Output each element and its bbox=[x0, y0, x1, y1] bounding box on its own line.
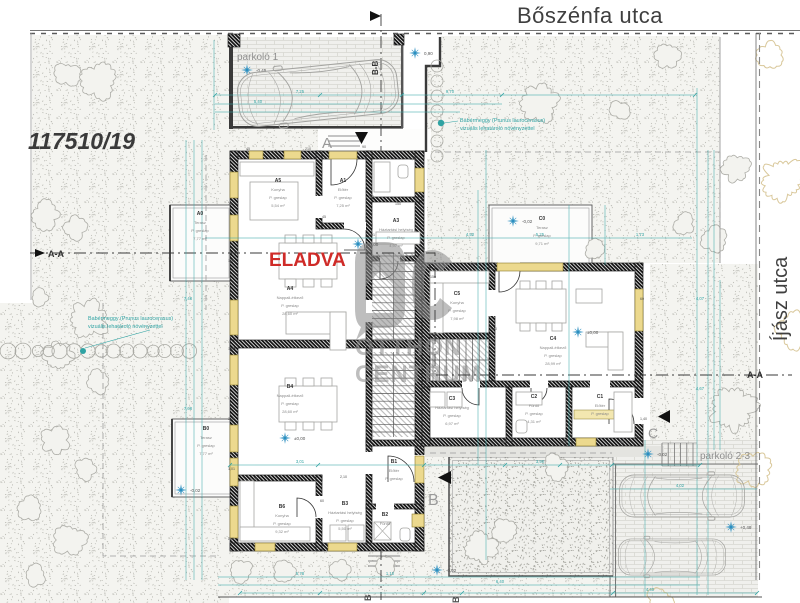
svg-text:-0,02: -0,02 bbox=[522, 219, 533, 224]
svg-text:Nappali-étkező: Nappali-étkező bbox=[277, 295, 304, 300]
svg-text:P. greslap: P. greslap bbox=[336, 518, 354, 523]
svg-text:9,71 m²: 9,71 m² bbox=[535, 241, 549, 246]
svg-text:7,98 m²: 7,98 m² bbox=[450, 316, 464, 321]
svg-text:P. greslap: P. greslap bbox=[525, 411, 543, 416]
svg-text:7,25 m²: 7,25 m² bbox=[336, 203, 350, 208]
svg-text:P. greslap: P. greslap bbox=[281, 401, 299, 406]
svg-text:vizuális lehatároló növényzett: vizuális lehatároló növényzettel bbox=[88, 324, 163, 330]
svg-text:6,97 m²: 6,97 m² bbox=[445, 421, 459, 426]
svg-text:±0,00: ±0,00 bbox=[294, 436, 306, 441]
svg-text:B: B bbox=[428, 492, 439, 509]
svg-text:1,40: 1,40 bbox=[418, 247, 425, 251]
svg-text:B: B bbox=[363, 594, 373, 601]
svg-text:C4: C4 bbox=[550, 336, 557, 342]
svg-text:Előtér: Előtér bbox=[595, 403, 606, 408]
svg-text:Terasz: Terasz bbox=[536, 225, 548, 230]
svg-text:-0,02: -0,02 bbox=[657, 452, 668, 457]
svg-text:7,48: 7,48 bbox=[184, 296, 193, 301]
svg-text:Fürdő: Fürdő bbox=[380, 521, 391, 526]
svg-text:Konyha: Konyha bbox=[275, 513, 289, 518]
svg-text:P. greslap: P. greslap bbox=[443, 413, 461, 418]
svg-text:P. greslap: P. greslap bbox=[387, 235, 405, 240]
svg-text:P. greslap: P. greslap bbox=[269, 195, 287, 200]
svg-text:Bőszénfa utca: Bőszénfa utca bbox=[517, 3, 663, 28]
svg-text:P. greslap: P. greslap bbox=[385, 476, 403, 481]
svg-text:60: 60 bbox=[320, 499, 324, 503]
svg-text:4,50: 4,50 bbox=[466, 232, 475, 237]
svg-text:1,40: 1,40 bbox=[640, 417, 647, 421]
svg-text:90: 90 bbox=[640, 357, 644, 361]
svg-text:C5: C5 bbox=[454, 291, 461, 297]
svg-text:OTTHON: OTTHON bbox=[355, 334, 462, 361]
svg-text:P. greslap: P. greslap bbox=[533, 233, 551, 238]
svg-text:Nappali-étkező: Nappali-étkező bbox=[540, 345, 567, 350]
svg-text:60: 60 bbox=[418, 357, 422, 361]
svg-text:28,99 m²: 28,99 m² bbox=[545, 361, 561, 366]
svg-text:300: 300 bbox=[368, 195, 374, 199]
svg-text:90: 90 bbox=[300, 542, 304, 546]
svg-text:B6: B6 bbox=[279, 504, 286, 510]
svg-text:4,40: 4,40 bbox=[646, 587, 655, 592]
svg-text:B1: B1 bbox=[391, 459, 398, 465]
svg-text:75: 75 bbox=[372, 503, 376, 507]
svg-text:Háztartási helyiség: Háztartási helyiség bbox=[328, 510, 362, 515]
svg-text:240: 240 bbox=[228, 417, 234, 421]
svg-text:90: 90 bbox=[362, 145, 366, 149]
svg-text:-0,02: -0,02 bbox=[446, 568, 457, 573]
svg-text:A3: A3 bbox=[393, 218, 400, 224]
svg-text:1,01: 1,01 bbox=[410, 157, 417, 161]
svg-text:4,97 m²: 4,97 m² bbox=[389, 243, 403, 248]
svg-text:2,40: 2,40 bbox=[250, 477, 257, 481]
svg-text:ELADVA: ELADVA bbox=[269, 250, 346, 271]
svg-text:1,40: 1,40 bbox=[490, 327, 497, 331]
svg-text:7,77 m²: 7,77 m² bbox=[193, 236, 207, 241]
svg-text:Konyha: Konyha bbox=[271, 187, 285, 192]
svg-text:4,31 m²: 4,31 m² bbox=[527, 419, 541, 424]
svg-text:4,02: 4,02 bbox=[676, 483, 685, 488]
svg-text:4,07: 4,07 bbox=[696, 296, 705, 301]
svg-text:Babérmeggy (Prunus laurocerasu: Babérmeggy (Prunus laurocerasus) bbox=[460, 118, 545, 124]
svg-text:4,67: 4,67 bbox=[696, 386, 705, 391]
svg-text:0,90: 0,90 bbox=[424, 51, 433, 56]
svg-text:90: 90 bbox=[418, 497, 422, 501]
svg-text:60: 60 bbox=[640, 297, 644, 301]
svg-text:150: 150 bbox=[430, 275, 436, 279]
svg-text:Nappali-étkező: Nappali-étkező bbox=[277, 393, 304, 398]
svg-text:parkoló 2-3: parkoló 2-3 bbox=[700, 451, 750, 462]
svg-text:5,40: 5,40 bbox=[254, 99, 263, 104]
svg-text:parkoló 1: parkoló 1 bbox=[237, 52, 279, 63]
svg-text:1,01: 1,01 bbox=[560, 440, 567, 444]
svg-text:B2: B2 bbox=[382, 512, 389, 518]
svg-text:5,78: 5,78 bbox=[296, 571, 305, 576]
svg-text:A1: A1 bbox=[340, 178, 347, 184]
svg-text:A-A: A-A bbox=[48, 249, 64, 259]
svg-text:C1: C1 bbox=[597, 394, 604, 400]
svg-text:Terasz: Terasz bbox=[200, 435, 212, 440]
svg-text:7,25: 7,25 bbox=[296, 89, 305, 94]
svg-text:Konyha: Konyha bbox=[450, 300, 464, 305]
svg-text:5,50 m²: 5,50 m² bbox=[338, 526, 352, 531]
svg-text:1,01: 1,01 bbox=[430, 332, 437, 336]
svg-text:150: 150 bbox=[228, 259, 234, 263]
svg-text:Háztartási helyiség: Háztartási helyiség bbox=[435, 405, 469, 410]
svg-text:3,01: 3,01 bbox=[296, 459, 305, 464]
svg-text:A5: A5 bbox=[275, 178, 282, 184]
svg-text:117510/19: 117510/19 bbox=[28, 128, 135, 154]
svg-text:C2: C2 bbox=[531, 394, 538, 400]
svg-text:3,90: 3,90 bbox=[536, 459, 545, 464]
svg-text:9,70: 9,70 bbox=[446, 89, 455, 94]
svg-text:75: 75 bbox=[228, 202, 232, 206]
svg-text:Háztartási helyiség: Háztartási helyiség bbox=[379, 227, 413, 232]
svg-text:45: 45 bbox=[246, 147, 250, 151]
svg-text:28,60 m²: 28,60 m² bbox=[282, 311, 298, 316]
svg-text:B: B bbox=[451, 596, 461, 603]
svg-text:45: 45 bbox=[620, 440, 624, 444]
svg-text:P. greslap: P. greslap bbox=[334, 195, 352, 200]
svg-text:300: 300 bbox=[418, 427, 424, 431]
svg-text:Előtér: Előtér bbox=[338, 187, 349, 192]
svg-text:P. greslap: P. greslap bbox=[273, 521, 291, 526]
svg-text:C3: C3 bbox=[449, 396, 456, 402]
svg-text:210: 210 bbox=[418, 297, 424, 301]
svg-text:150: 150 bbox=[395, 202, 401, 206]
svg-text:2,10: 2,10 bbox=[340, 475, 347, 479]
svg-text:±0,00: ±0,00 bbox=[367, 242, 379, 247]
svg-text:210: 210 bbox=[360, 542, 366, 546]
svg-text:Terasz: Terasz bbox=[194, 220, 206, 225]
svg-text:5,54 m²: 5,54 m² bbox=[271, 203, 285, 208]
svg-text:A-A: A-A bbox=[747, 370, 763, 380]
svg-text:CENTRUM: CENTRUM bbox=[355, 361, 482, 388]
svg-text:P. greslap: P. greslap bbox=[197, 443, 215, 448]
svg-text:7,68: 7,68 bbox=[184, 406, 193, 411]
svg-text:1,40: 1,40 bbox=[580, 262, 587, 266]
svg-text:P. greslap: P. greslap bbox=[281, 303, 299, 308]
svg-text:+0,48: +0,48 bbox=[740, 525, 752, 530]
svg-text:B4: B4 bbox=[287, 384, 294, 390]
svg-text:45: 45 bbox=[322, 215, 326, 219]
svg-text:P. greslap: P. greslap bbox=[191, 228, 209, 233]
svg-text:150: 150 bbox=[500, 440, 506, 444]
svg-text:Babérmeggy (Prunus laurocerasu: Babérmeggy (Prunus laurocerasus) bbox=[88, 316, 173, 322]
svg-text:B3: B3 bbox=[342, 501, 349, 507]
svg-text:±0,00: ±0,00 bbox=[587, 330, 599, 335]
svg-text:7,77 m²: 7,77 m² bbox=[199, 451, 213, 456]
svg-text:A: A bbox=[322, 135, 332, 152]
svg-text:1,73: 1,73 bbox=[636, 232, 645, 237]
svg-text:Íjász utca: Íjász utca bbox=[769, 256, 792, 341]
svg-text:C0: C0 bbox=[539, 216, 546, 222]
svg-text:-0,02: -0,02 bbox=[190, 488, 201, 493]
svg-text:C: C bbox=[648, 425, 658, 441]
svg-text:210: 210 bbox=[305, 147, 311, 151]
svg-text:P. greslap: P. greslap bbox=[448, 308, 466, 313]
svg-text:A4: A4 bbox=[287, 286, 294, 292]
svg-text:150: 150 bbox=[228, 347, 234, 351]
svg-text:1,10: 1,10 bbox=[386, 571, 395, 576]
svg-text:1,01: 1,01 bbox=[228, 467, 235, 471]
svg-text:210: 210 bbox=[228, 537, 234, 541]
svg-text:vizuális lehatároló növényzett: vizuális lehatároló növényzettel bbox=[460, 126, 535, 132]
svg-text:1,01: 1,01 bbox=[368, 233, 375, 237]
svg-text:Fürdő: Fürdő bbox=[529, 403, 540, 408]
svg-text:Előtér: Előtér bbox=[389, 468, 400, 473]
svg-text:P. greslap: P. greslap bbox=[544, 353, 562, 358]
svg-text:28,60 m²: 28,60 m² bbox=[282, 409, 298, 414]
svg-text:P. greslap: P. greslap bbox=[591, 411, 609, 416]
svg-text:B0: B0 bbox=[203, 426, 210, 432]
svg-text:6,40: 6,40 bbox=[496, 579, 505, 584]
svg-text:A0: A0 bbox=[197, 211, 204, 217]
svg-text:150: 150 bbox=[470, 262, 476, 266]
svg-text:9,32 m²: 9,32 m² bbox=[275, 529, 289, 534]
